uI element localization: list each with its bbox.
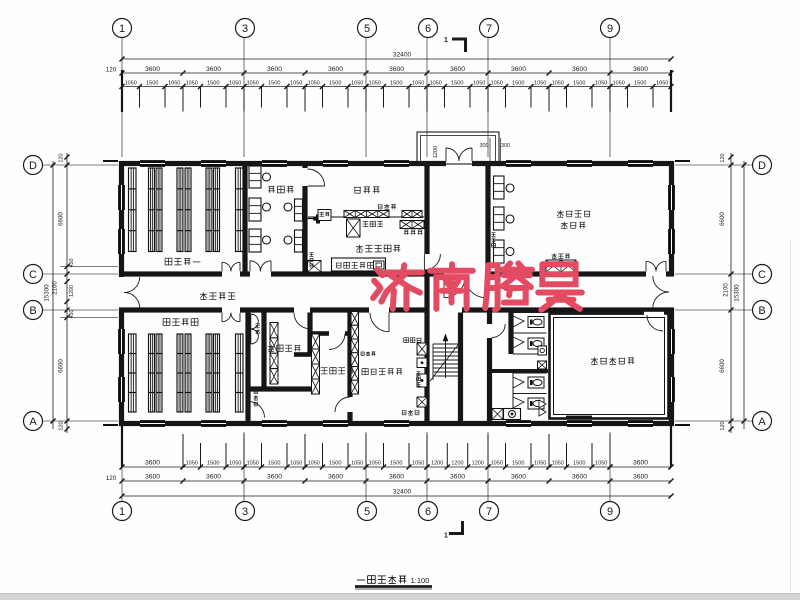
svg-text:1050: 1050 [247, 461, 259, 467]
svg-text:2100: 2100 [53, 281, 59, 295]
svg-text:3600: 3600 [389, 66, 404, 73]
svg-text:3600: 3600 [267, 66, 282, 73]
svg-text:1050: 1050 [552, 81, 564, 87]
svg-text:1050: 1050 [290, 461, 302, 467]
svg-text:1050: 1050 [186, 461, 198, 467]
svg-text:3600: 3600 [633, 460, 648, 467]
svg-text:1500: 1500 [390, 461, 402, 467]
svg-text:6600: 6600 [719, 212, 726, 226]
svg-text:2100: 2100 [724, 283, 730, 297]
svg-text:1050: 1050 [369, 461, 381, 467]
svg-text:1050: 1050 [168, 81, 180, 87]
svg-text:1500: 1500 [268, 461, 280, 467]
svg-text:3600: 3600 [145, 66, 160, 73]
svg-text:120: 120 [59, 153, 65, 162]
svg-text:1050: 1050 [534, 461, 546, 467]
svg-text:6600: 6600 [719, 359, 726, 373]
svg-text:32400: 32400 [393, 52, 412, 59]
svg-text:1050: 1050 [125, 81, 137, 87]
svg-text:1: 1 [119, 23, 125, 35]
svg-text:300: 300 [480, 143, 489, 149]
svg-text:1500: 1500 [329, 81, 341, 87]
svg-text:1050: 1050 [229, 461, 241, 467]
svg-text:120: 120 [106, 475, 117, 482]
svg-text:1050: 1050 [656, 81, 668, 87]
svg-text:5: 5 [364, 23, 370, 35]
svg-text:9: 9 [607, 23, 613, 35]
svg-text:1500: 1500 [268, 81, 280, 87]
svg-text:6: 6 [425, 23, 431, 35]
svg-text:6: 6 [425, 506, 431, 518]
svg-text:1200: 1200 [472, 461, 484, 467]
svg-text:1050: 1050 [290, 81, 302, 87]
svg-text:3600: 3600 [511, 66, 526, 73]
svg-text:1050: 1050 [613, 81, 625, 87]
svg-text:3600: 3600 [633, 474, 648, 481]
svg-text:15300: 15300 [44, 284, 51, 302]
svg-text:1: 1 [119, 506, 125, 518]
svg-text:1: 1 [444, 37, 448, 44]
svg-text:1500: 1500 [329, 461, 341, 467]
svg-text:9: 9 [607, 506, 613, 518]
svg-text:1050: 1050 [552, 461, 564, 467]
svg-text:3600: 3600 [572, 66, 587, 73]
svg-text:1050: 1050 [229, 81, 241, 87]
svg-text:1500: 1500 [146, 81, 158, 87]
svg-text:1200: 1200 [431, 461, 443, 467]
svg-text:D: D [758, 160, 766, 172]
svg-text:3600: 3600 [389, 474, 404, 481]
svg-text:1050: 1050 [595, 461, 607, 467]
svg-text:1050: 1050 [369, 81, 381, 87]
svg-text:3600: 3600 [267, 474, 282, 481]
svg-text:C: C [758, 269, 766, 281]
svg-text:1050: 1050 [308, 81, 320, 87]
svg-text:3600: 3600 [145, 474, 160, 481]
svg-text:3600: 3600 [450, 66, 465, 73]
svg-text:120: 120 [720, 421, 726, 430]
svg-text:3: 3 [242, 506, 248, 518]
svg-text:5: 5 [364, 506, 370, 518]
svg-text:1050: 1050 [308, 461, 320, 467]
svg-text:1050: 1050 [534, 81, 546, 87]
svg-text:450: 450 [69, 259, 75, 268]
svg-text:1500: 1500 [207, 461, 219, 467]
svg-text:1050: 1050 [186, 81, 198, 87]
svg-text:450: 450 [69, 310, 75, 319]
svg-text:1500: 1500 [512, 81, 524, 87]
svg-text:1050: 1050 [491, 81, 503, 87]
svg-text:3600: 3600 [206, 474, 221, 481]
svg-text:1200: 1200 [451, 461, 463, 467]
svg-text:1050: 1050 [412, 81, 424, 87]
svg-text:1500: 1500 [512, 461, 524, 467]
svg-text:A: A [29, 416, 37, 428]
svg-text:1050: 1050 [412, 461, 424, 467]
svg-text:3600: 3600 [206, 66, 221, 73]
svg-text:B: B [758, 305, 765, 317]
svg-text:3600: 3600 [572, 474, 587, 481]
svg-text:1500: 1500 [207, 81, 219, 87]
svg-text:7: 7 [486, 23, 492, 35]
svg-text:15300: 15300 [734, 284, 741, 302]
svg-text:32400: 32400 [393, 489, 412, 496]
svg-text:1050: 1050 [351, 461, 363, 467]
svg-text:1:100: 1:100 [411, 576, 430, 585]
svg-text:3600: 3600 [633, 66, 648, 73]
svg-text:C: C [29, 269, 37, 281]
svg-text:1200: 1200 [433, 146, 439, 158]
svg-text:3600: 3600 [450, 474, 465, 481]
svg-text:300: 300 [501, 143, 510, 149]
svg-text:3600: 3600 [328, 474, 343, 481]
svg-text:1050: 1050 [430, 81, 442, 87]
svg-text:1050: 1050 [491, 461, 503, 467]
svg-text:D: D [29, 160, 37, 172]
svg-text:1050: 1050 [247, 81, 259, 87]
svg-text:1500: 1500 [573, 461, 585, 467]
svg-text:1: 1 [444, 533, 448, 540]
svg-text:1500: 1500 [451, 81, 463, 87]
svg-text:1050: 1050 [473, 81, 485, 87]
svg-text:A: A [758, 416, 766, 428]
svg-text:1050: 1050 [351, 81, 363, 87]
svg-text:1500: 1500 [573, 81, 585, 87]
svg-text:6600: 6600 [58, 359, 65, 373]
svg-text:120: 120 [720, 153, 726, 162]
svg-text:1050: 1050 [595, 81, 607, 87]
svg-text:1200: 1200 [69, 285, 75, 297]
svg-text:120: 120 [106, 67, 117, 74]
svg-text:7: 7 [486, 506, 492, 518]
svg-text:3: 3 [242, 23, 248, 35]
svg-text:3600: 3600 [328, 66, 343, 73]
svg-text:B: B [29, 305, 36, 317]
svg-text:1500: 1500 [634, 81, 646, 87]
svg-text:1500: 1500 [390, 81, 402, 87]
svg-text:3600: 3600 [145, 460, 160, 467]
svg-text:120: 120 [59, 421, 65, 430]
svg-text:3600: 3600 [511, 474, 526, 481]
svg-text:6600: 6600 [58, 212, 65, 226]
